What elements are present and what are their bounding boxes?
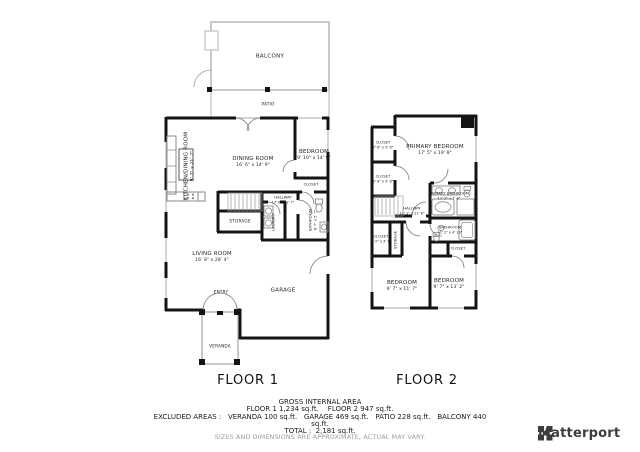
primary-bathroom-label: PRIMARY BATHROOM 11' 2" x 7' 8" xyxy=(429,191,469,200)
garage-label: GARAGE xyxy=(271,288,296,295)
floor2-storage-label: STORAGE xyxy=(394,231,399,249)
floor1-storage-label: STORAGE xyxy=(229,218,250,223)
primary-bedroom-label: PRIMARY BEDROOM 17' 5" x 19' 8" xyxy=(406,144,464,157)
patio-label: PATIO xyxy=(262,101,275,106)
floor1-closet-label: CLOSET xyxy=(304,183,319,188)
floor2-hallway-label: HALLWAY 12' 1" x 11' 8" xyxy=(399,206,424,215)
floor2-bathroom-label: BATHROOM 11' 2" x 4' 10" xyxy=(437,225,462,234)
floor2-closet-b-label: CLOSET 5' 8" x 3' 8" xyxy=(373,174,394,183)
floor2-title: FLOOR 2 xyxy=(396,373,458,389)
balcony-label: BALCONY xyxy=(256,54,284,61)
living-room-label: LIVING ROOM 16' 8" x 28' 4" xyxy=(192,251,232,264)
dining-room-label: DINING ROOM 16' 6" x 14' 9" xyxy=(232,156,273,169)
floor2-closet-d-label: CLOSET 4' 2" x 3' 6" xyxy=(371,234,392,243)
floor1-stairs xyxy=(228,193,262,211)
floor2-bedroom-right-label: BEDROOM 9' 7" x 13' 2" xyxy=(434,278,465,291)
floor1-laundry-label: LAUNDRY xyxy=(272,213,277,231)
matterport-logo-icon xyxy=(538,426,553,441)
floor1-hallway-label: HALLWAY 17' 6" x 3' 7" xyxy=(272,195,295,204)
matterport-brand: Matterport xyxy=(538,426,620,441)
floor-plan-page: BALCONY PATIO KITCHEN/DINING ROOM 9' 7" … xyxy=(0,0,640,452)
floor2-closet-c-label: CLOSET xyxy=(451,247,466,252)
veranda-label: VERANDA xyxy=(209,343,231,348)
floor2-closet-a-label: CLOSET 7' 8" x 3' 6" xyxy=(373,140,394,149)
floor2-bedroom-left-label: BEDROOM 9' 7" x 11' 7" xyxy=(387,280,418,293)
floor1-title: FLOOR 1 xyxy=(217,373,279,389)
entry-label: ENTRY xyxy=(214,289,229,294)
floor-plan-linework xyxy=(0,0,640,452)
floor1-bedroom-label: BEDROOM 9' 10" x 14' 9" xyxy=(297,149,331,162)
floor1-bathroom-label: BATHROOM 8' 7" x 5' 7" xyxy=(308,209,317,231)
kitchen-label: KITCHEN/DINING ROOM 9' 7" x 21' 7" xyxy=(184,132,197,200)
